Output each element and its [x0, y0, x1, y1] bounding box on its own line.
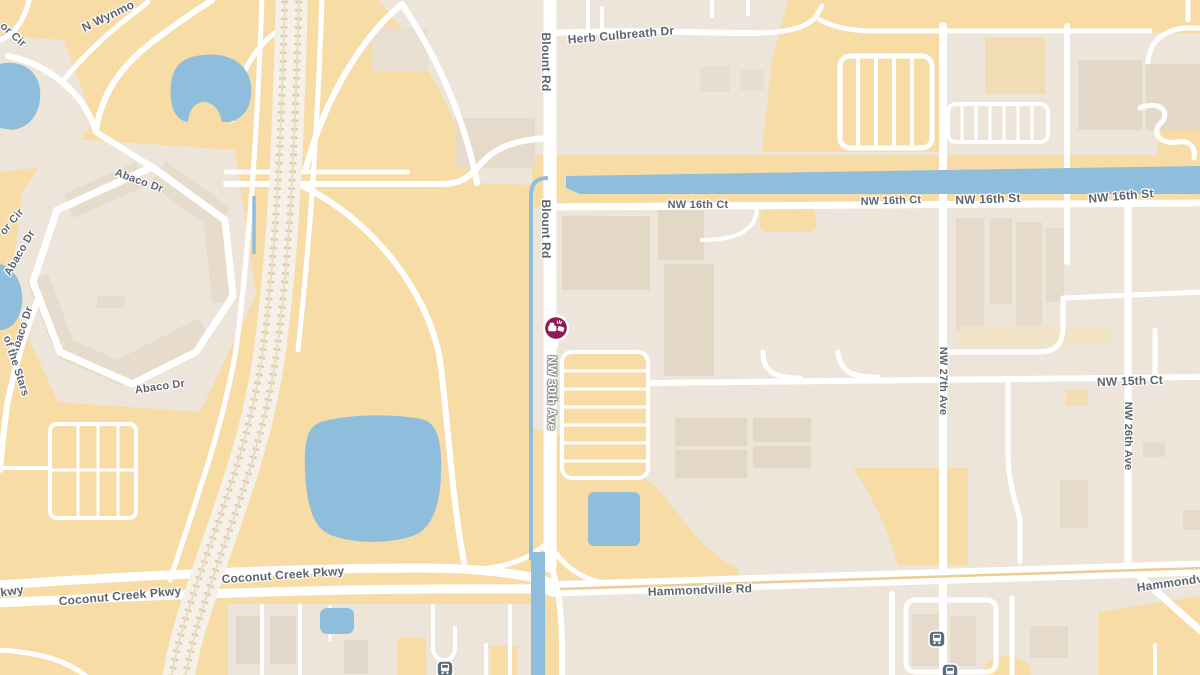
lake	[305, 415, 441, 541]
map-canvas[interactable]: or CirN WynmoAbaco Dror CirAbaco DrAbaco…	[0, 0, 1200, 675]
transit-station-icon[interactable]	[436, 660, 454, 675]
map-graphics-layer	[0, 0, 1200, 675]
transit-station-icon[interactable]	[941, 663, 959, 675]
transit-station-icon[interactable]	[928, 630, 946, 648]
crash-incident-marker[interactable]	[541, 313, 571, 353]
